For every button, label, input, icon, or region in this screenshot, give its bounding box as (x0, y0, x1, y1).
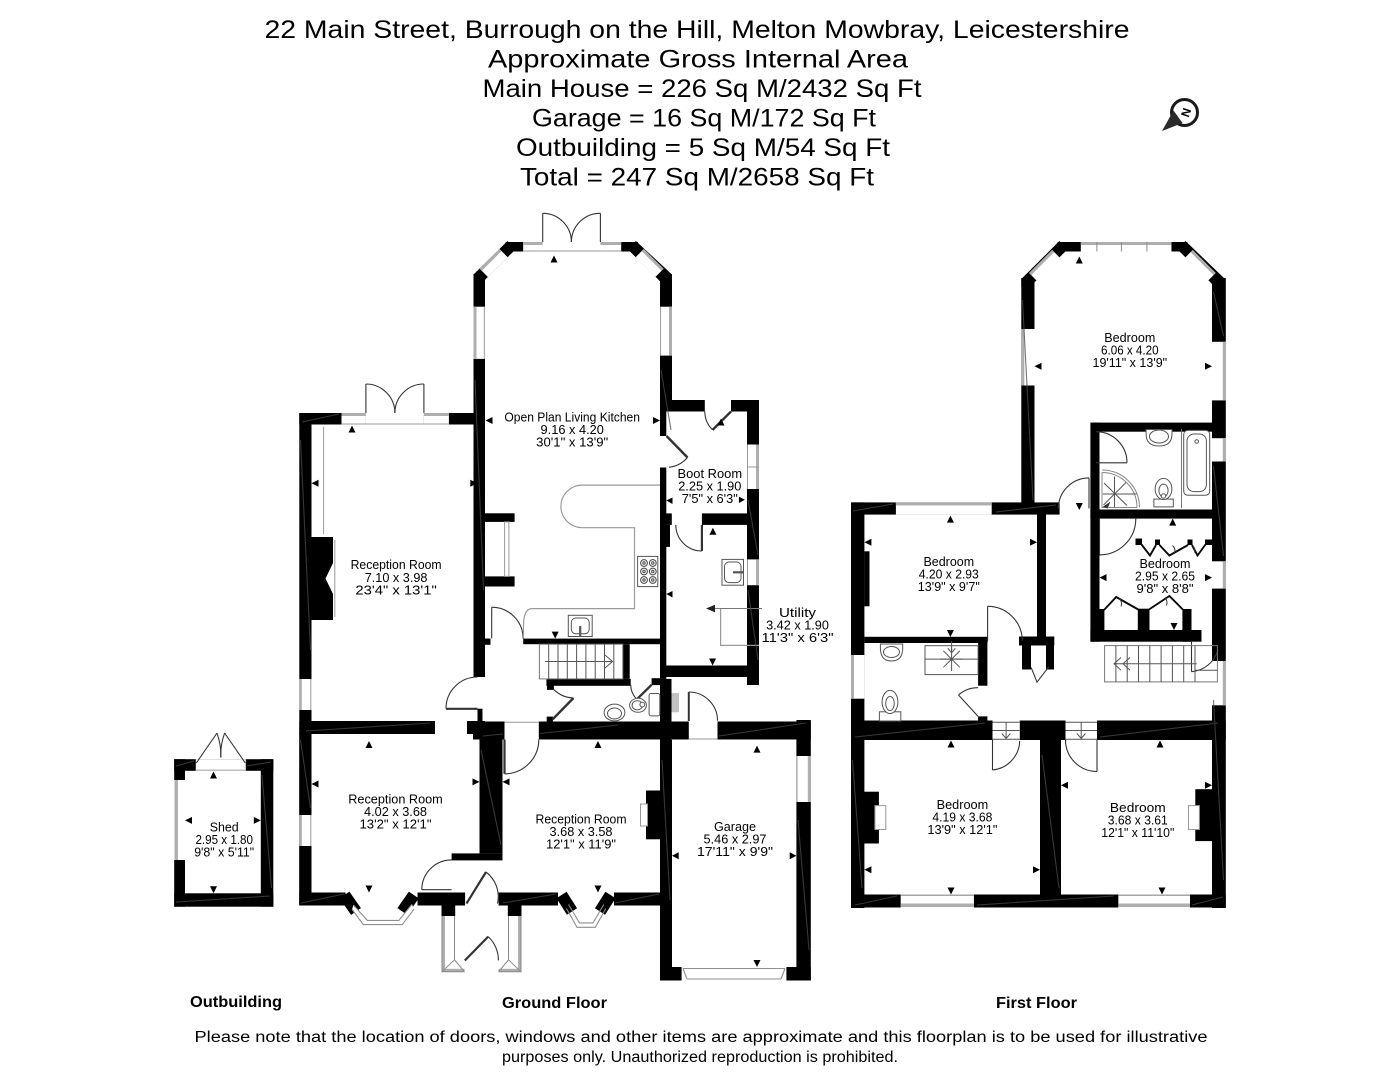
svg-text:17'11" x 9'9": 17'11" x 9'9" (697, 844, 773, 859)
svg-text:30'1" x 13'9": 30'1" x 13'9" (536, 435, 608, 450)
svg-text:9'8" x 5'11": 9'8" x 5'11" (194, 845, 254, 860)
svg-text:7'5" x 6'3": 7'5" x 6'3" (682, 491, 738, 506)
svg-text:19'11" x 13'9": 19'11" x 13'9" (1093, 355, 1168, 370)
svg-text:Outbuilding: Outbuilding (190, 994, 282, 1011)
svg-text:First Floor: First Floor (996, 995, 1077, 1012)
svg-text:Outbuilding = 5 Sq M/54 Sq Ft: Outbuilding = 5 Sq M/54 Sq Ft (516, 134, 890, 162)
svg-text:Please note that the location: Please note that the location of doors, … (195, 1029, 1208, 1046)
svg-text:13'2" x 12'1": 13'2" x 12'1" (360, 817, 432, 832)
svg-text:23'4" x 13'1": 23'4" x 13'1" (355, 583, 437, 598)
svg-text:Ground Floor: Ground Floor (502, 995, 607, 1012)
svg-text:11'3" x 6'3": 11'3" x 6'3" (762, 630, 834, 645)
svg-text:12'1" x 11'9": 12'1" x 11'9" (546, 837, 616, 852)
svg-text:Total = 247 Sq M/2658 Sq Ft: Total = 247 Sq M/2658 Sq Ft (520, 164, 874, 192)
svg-text:purposes only. Unauthorized re: purposes only. Unauthorized reproduction… (502, 1049, 898, 1066)
svg-text:9'8" x 8'8": 9'8" x 8'8" (1137, 581, 1194, 596)
svg-text:12'1" x 11'10": 12'1" x 11'10" (1101, 825, 1174, 840)
svg-text:13'9" x 12'1": 13'9" x 12'1" (927, 822, 997, 837)
svg-text:Main House = 226 Sq M/2432 Sq: Main House = 226 Sq M/2432 Sq Ft (483, 75, 922, 103)
svg-text:Garage = 16 Sq M/172 Sq Ft: Garage = 16 Sq M/172 Sq Ft (532, 105, 876, 133)
svg-text:22 Main Street, Burrough on th: 22 Main Street, Burrough on the Hill, Me… (265, 16, 1130, 44)
svg-text:Approximate Gross Internal Are: Approximate Gross Internal Area (488, 46, 908, 74)
svg-text:13'9" x 9'7": 13'9" x 9'7" (918, 579, 980, 594)
